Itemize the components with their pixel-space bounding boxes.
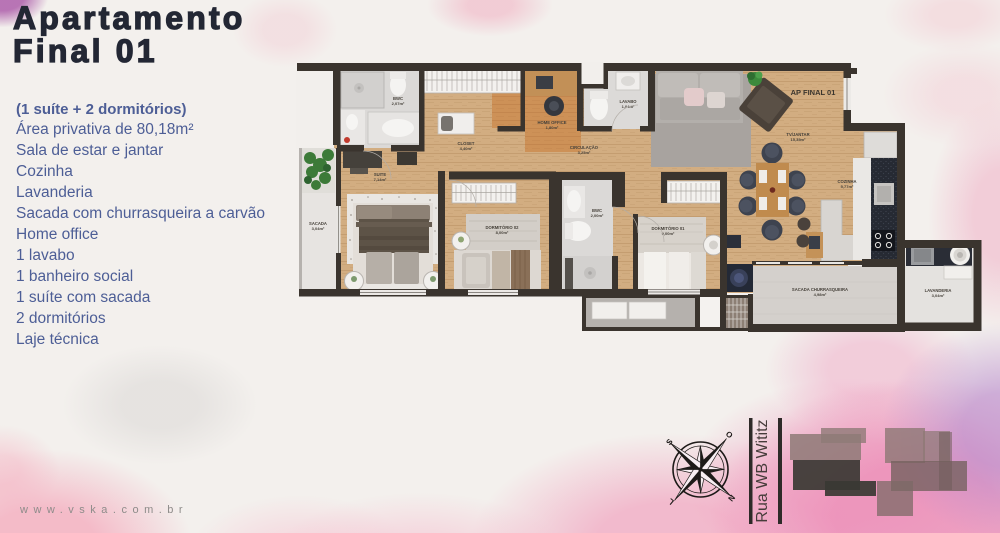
svg-text:3,04m²: 3,04m²: [932, 293, 945, 298]
svg-text:L: L: [666, 496, 676, 506]
svg-text:3,25m²: 3,25m²: [578, 150, 591, 155]
svg-text:9,00m²: 9,00m²: [662, 231, 675, 236]
svg-text:4,40m²: 4,40m²: [460, 146, 473, 151]
svg-text:3,04m²: 3,04m²: [312, 226, 325, 231]
svg-text:2,07m²: 2,07m²: [392, 101, 405, 106]
svg-text:2,00m²: 2,00m²: [591, 213, 604, 218]
svg-text:Rua WB Wititz: Rua WB Wititz: [754, 419, 771, 522]
svg-text:7,14m²: 7,14m²: [374, 177, 387, 182]
svg-text:AP FINAL 01: AP FINAL 01: [791, 88, 836, 97]
svg-text:8,00m²: 8,00m²: [496, 230, 509, 235]
svg-text:O: O: [724, 429, 735, 440]
svg-text:15,35m²: 15,35m²: [791, 137, 807, 142]
svg-text:5,77m²: 5,77m²: [841, 184, 854, 189]
svg-text:4,98m²: 4,98m²: [814, 292, 827, 297]
svg-text:1,80m²: 1,80m²: [546, 125, 559, 130]
